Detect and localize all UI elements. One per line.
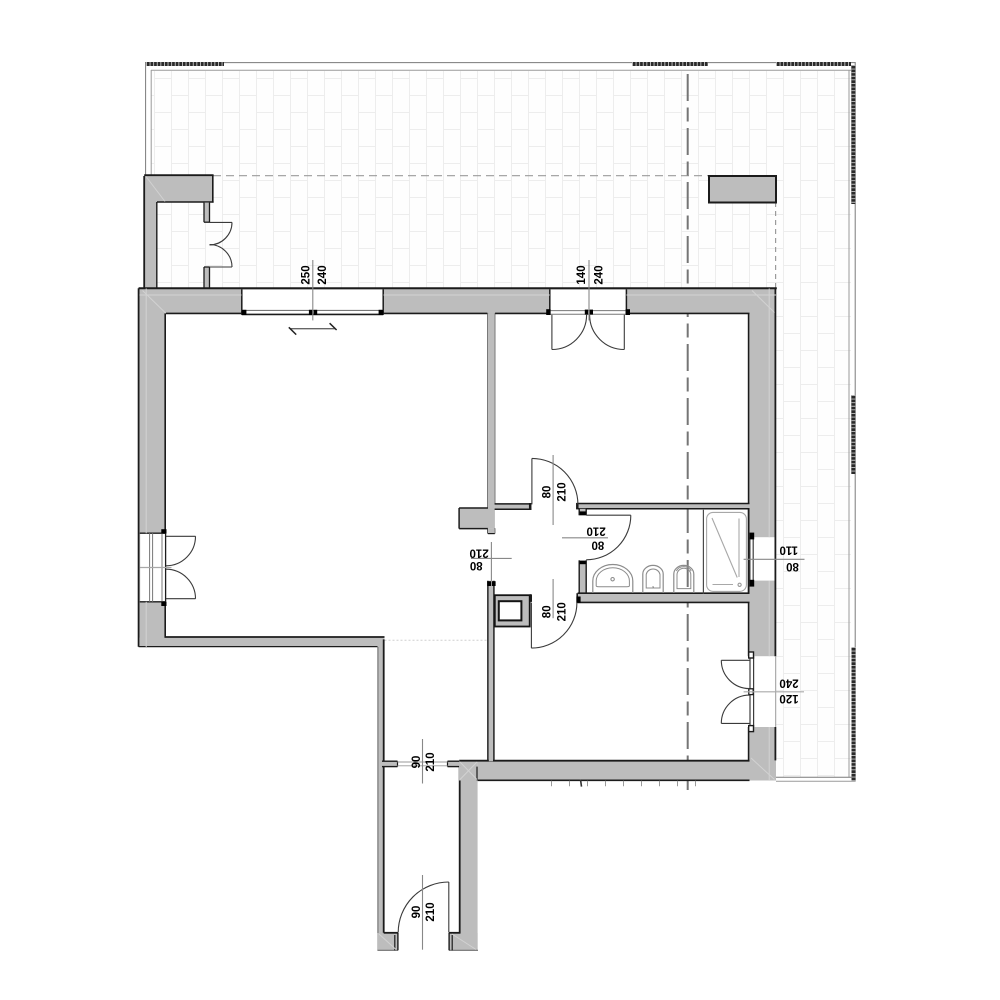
svg-text:90: 90 xyxy=(411,906,423,919)
svg-text:80: 80 xyxy=(592,539,605,551)
svg-text:250: 250 xyxy=(300,265,312,284)
svg-text:240: 240 xyxy=(317,265,329,284)
svg-text:90: 90 xyxy=(411,756,423,769)
svg-text:210: 210 xyxy=(425,902,437,921)
svg-text:120: 120 xyxy=(779,692,798,704)
svg-text:210: 210 xyxy=(425,752,437,771)
svg-text:210: 210 xyxy=(470,546,489,558)
svg-text:240: 240 xyxy=(779,677,798,689)
svg-text:80: 80 xyxy=(470,559,483,571)
svg-text:80: 80 xyxy=(786,560,799,572)
svg-text:80: 80 xyxy=(542,605,554,618)
svg-text:210: 210 xyxy=(557,602,569,621)
svg-text:210: 210 xyxy=(557,482,569,501)
svg-text:240: 240 xyxy=(594,265,606,284)
svg-text:140: 140 xyxy=(576,265,588,284)
svg-text:80: 80 xyxy=(542,486,554,499)
svg-text:210: 210 xyxy=(587,525,606,537)
svg-text:110: 110 xyxy=(779,543,798,555)
